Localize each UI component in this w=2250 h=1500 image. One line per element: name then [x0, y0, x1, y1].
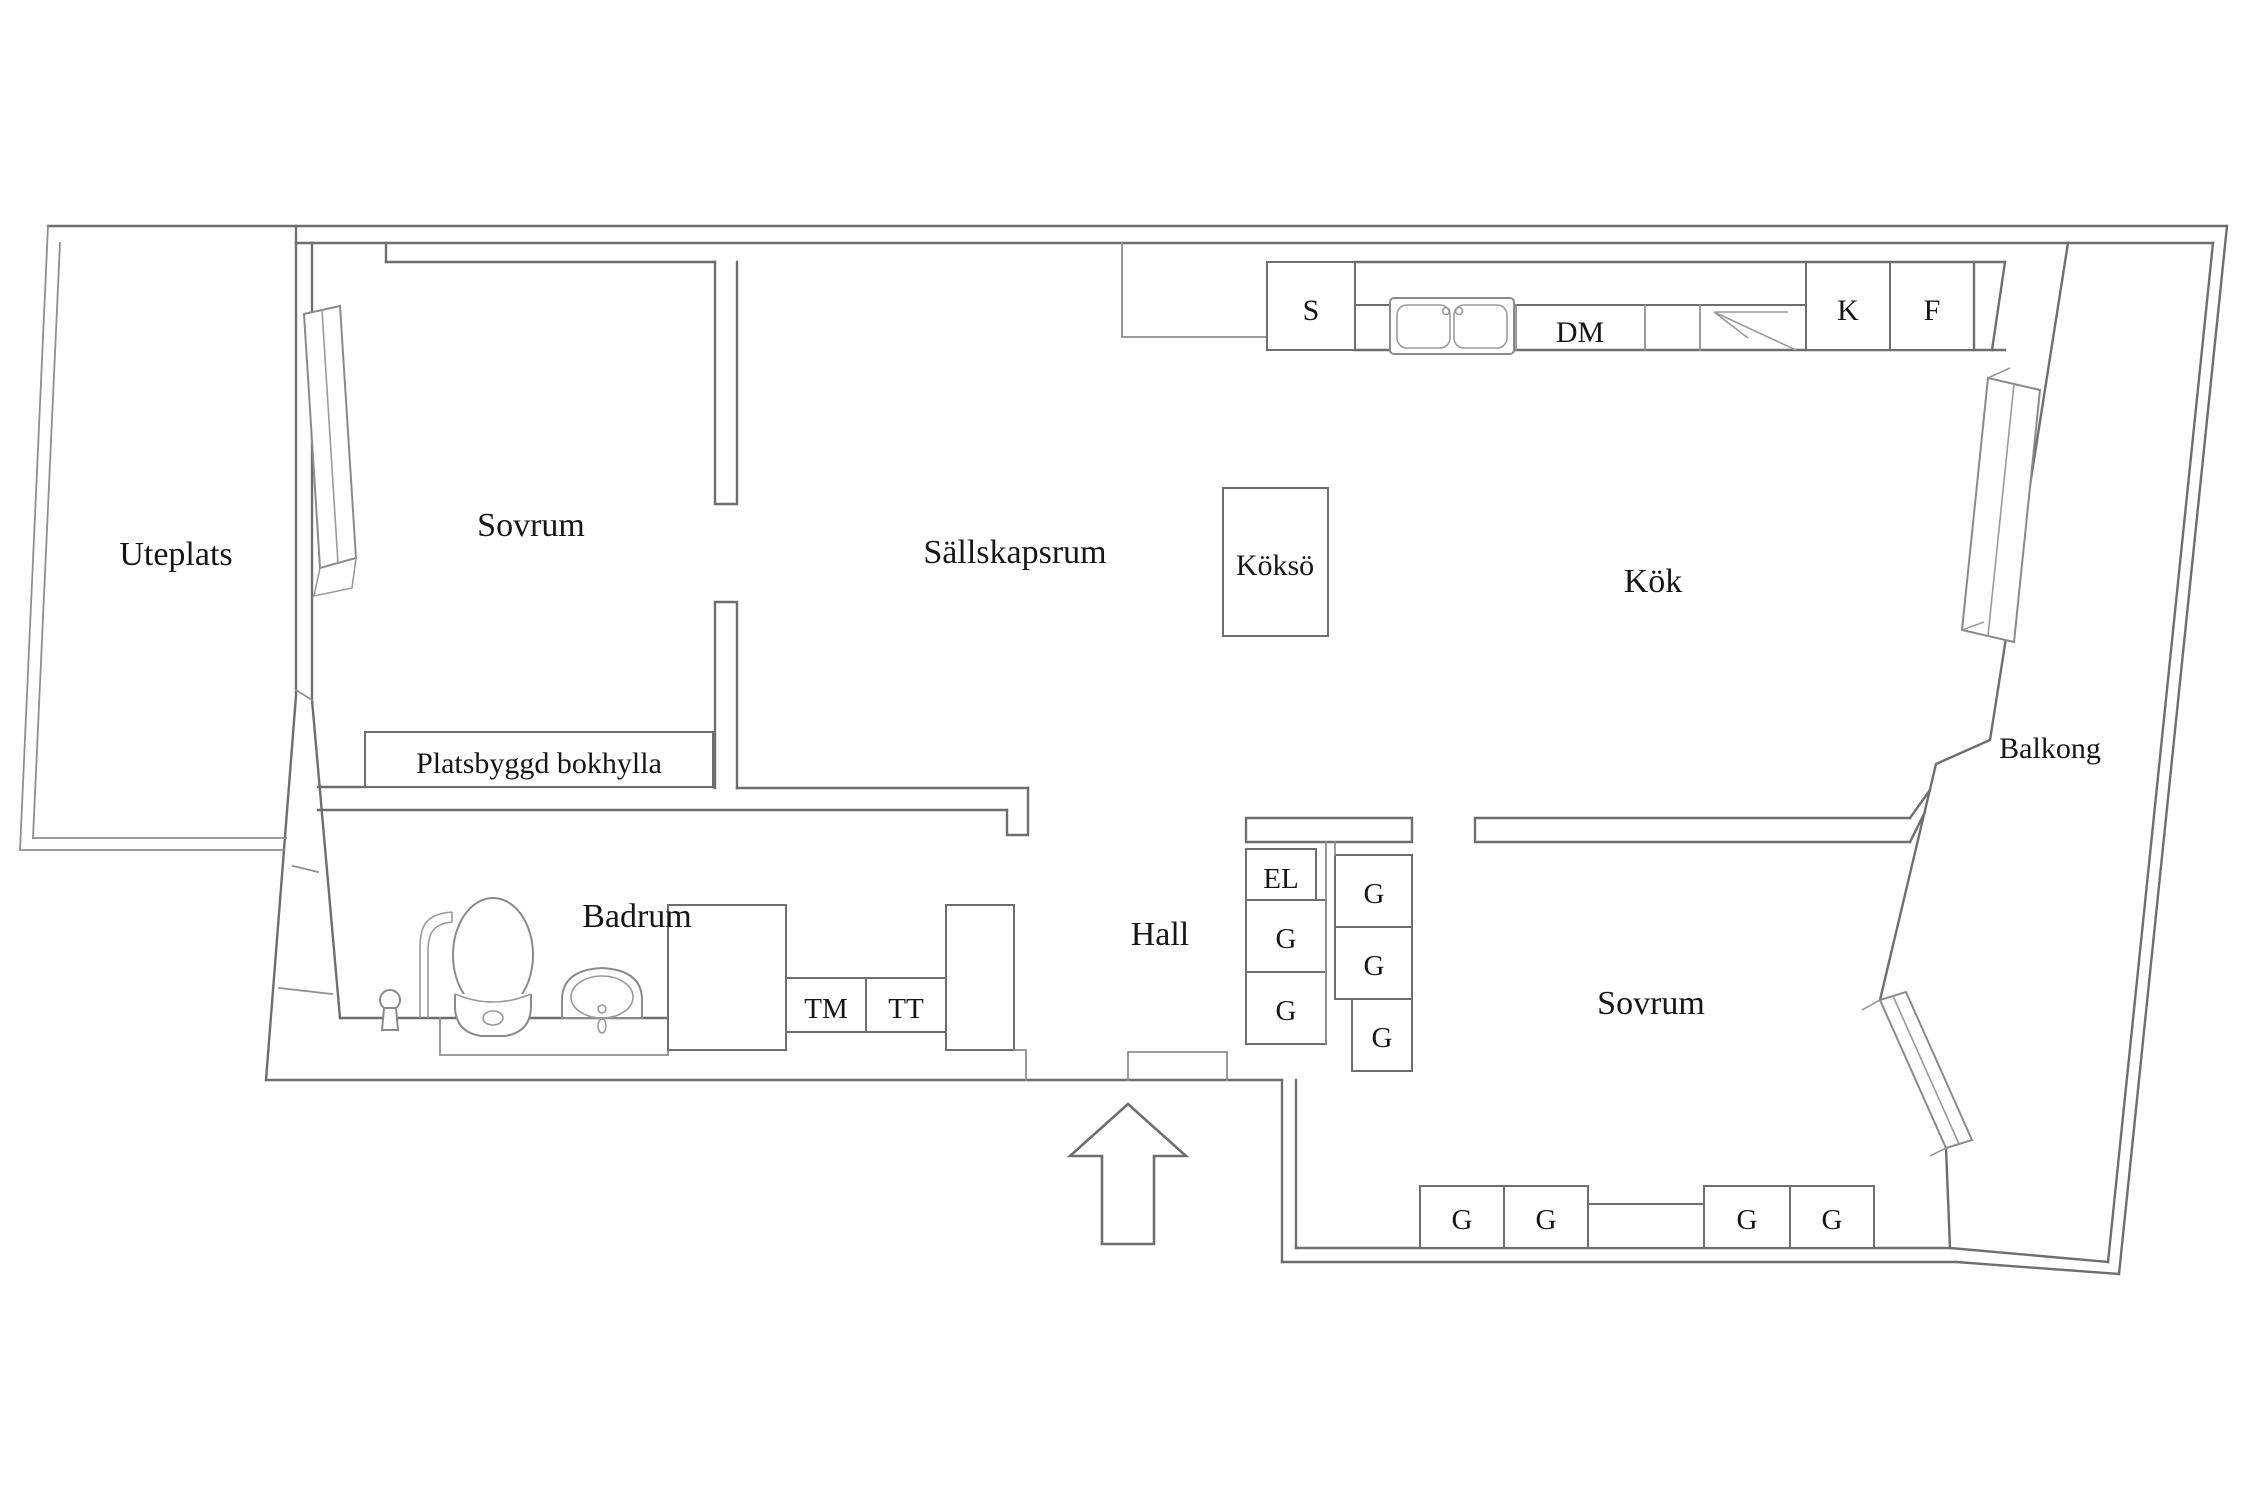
wardrobe-label: G [1364, 950, 1385, 982]
electrical-cabinet-label: EL [1263, 863, 1298, 895]
wardrobe-label: G [1372, 1022, 1393, 1054]
room-label-sovrum-right: Sovrum [1597, 985, 1705, 1022]
wardrobe-label: G [1364, 878, 1385, 910]
entrance-arrow-icon [1070, 1104, 1186, 1244]
wardrobe-label: G [1276, 923, 1297, 955]
floor-drain-icon [380, 990, 400, 1030]
kitchen-unit-s-label: S [1303, 294, 1320, 327]
corner-cabinet-icon [1714, 312, 1796, 350]
bedroom-window-icon [1862, 992, 1972, 1156]
floor-plan-drawing: Uteplats Sovrum Sällskapsrum Köksö Kök B… [0, 0, 2250, 1500]
bookshelf-label: Platsbyggd bokhylla [416, 747, 662, 780]
wardrobe-label: G [1452, 1204, 1473, 1236]
wardrobe-label: G [1822, 1204, 1843, 1236]
room-label-sallskapsrum: Sällskapsrum [923, 534, 1106, 571]
kitchen-sink-icon [1390, 298, 1514, 354]
shower-icon [420, 912, 452, 1018]
washbasin-icon [562, 968, 642, 1033]
kitchen-unit-k-label: K [1837, 294, 1859, 327]
wardrobe-label: G [1276, 995, 1297, 1027]
room-label-balkong: Balkong [1999, 732, 2101, 765]
kitchen-unit-dm-label: DM [1556, 316, 1604, 349]
room-label-kokso: Köksö [1236, 549, 1314, 582]
washing-machine-label: TM [804, 993, 848, 1025]
room-label-uteplats: Uteplats [119, 536, 232, 573]
wardrobe-label: G [1737, 1204, 1758, 1236]
room-label-hall: Hall [1131, 916, 1190, 953]
room-label-badrum: Badrum [582, 898, 692, 935]
kitchen-unit-f-label: F [1924, 294, 1941, 327]
balcony-door-icon [1962, 368, 2040, 642]
toilet-icon [453, 898, 533, 1036]
dryer-label: TT [888, 993, 924, 1025]
room-label-kok: Kök [1624, 563, 1683, 600]
wardrobe-label: G [1536, 1204, 1557, 1236]
room-label-sovrum-left: Sovrum [477, 507, 585, 544]
floor-plan-page: Uteplats Sovrum Sällskapsrum Köksö Kök B… [0, 0, 2250, 1500]
